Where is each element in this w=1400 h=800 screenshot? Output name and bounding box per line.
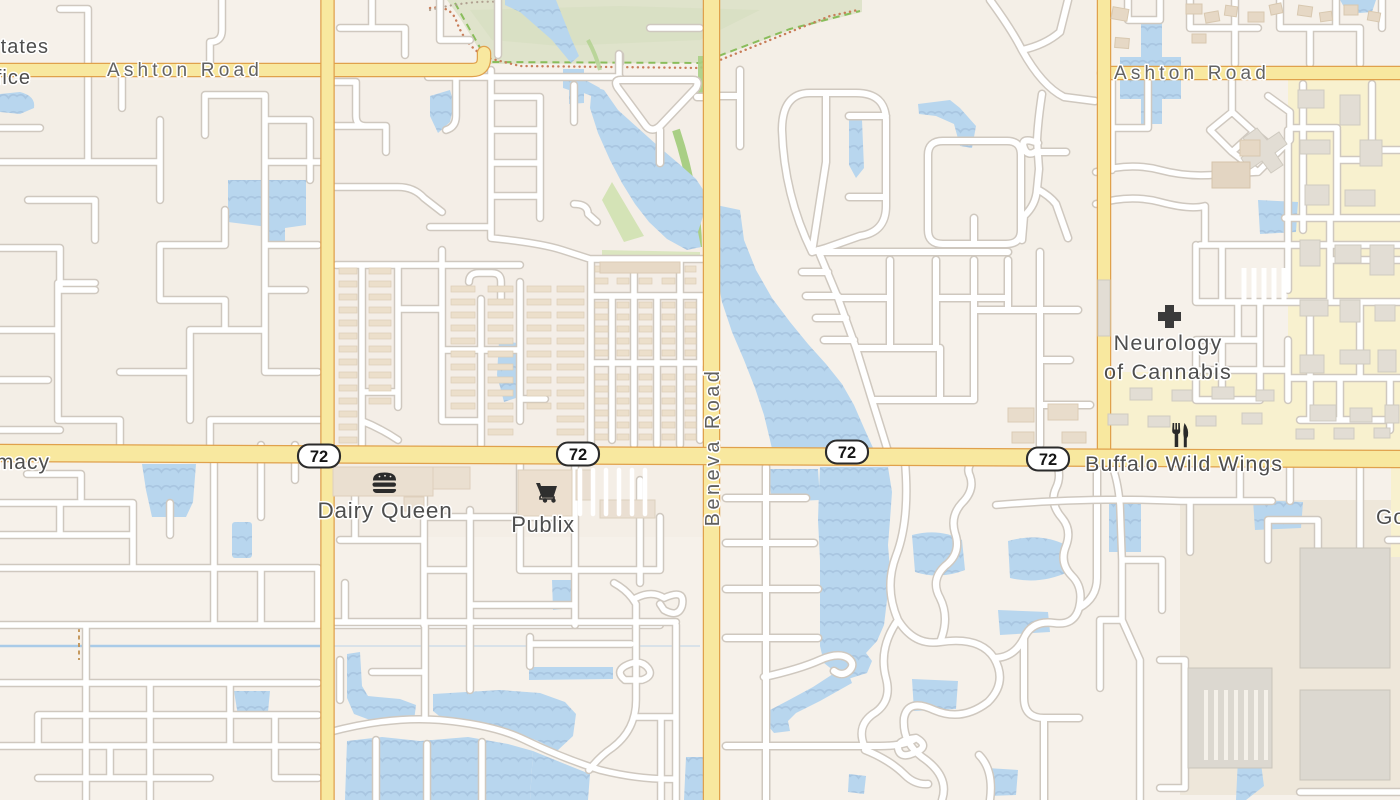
svg-text:of Cannabis: of Cannabis [1104, 360, 1232, 384]
svg-text:Publix: Publix [511, 512, 575, 537]
svg-text:72: 72 [1039, 451, 1057, 469]
svg-text:fice: fice [0, 67, 31, 89]
svg-text:Buffalo Wild Wings: Buffalo Wild Wings [1085, 452, 1283, 476]
svg-text:72: 72 [838, 444, 856, 462]
svg-text:macy: macy [0, 451, 50, 474]
svg-text:Ashton Road: Ashton Road [1114, 63, 1270, 84]
svg-text:Go: Go [1376, 506, 1400, 529]
svg-text:Beneva Road: Beneva Road [702, 368, 724, 527]
svg-text:Ashton Road: Ashton Road [107, 60, 263, 81]
svg-text:Neurology: Neurology [1114, 331, 1223, 355]
svg-text:72: 72 [569, 446, 587, 464]
svg-text:Dairy Queen: Dairy Queen [317, 498, 452, 523]
svg-text:72: 72 [310, 448, 328, 466]
svg-text:tates: tates [1, 36, 49, 58]
